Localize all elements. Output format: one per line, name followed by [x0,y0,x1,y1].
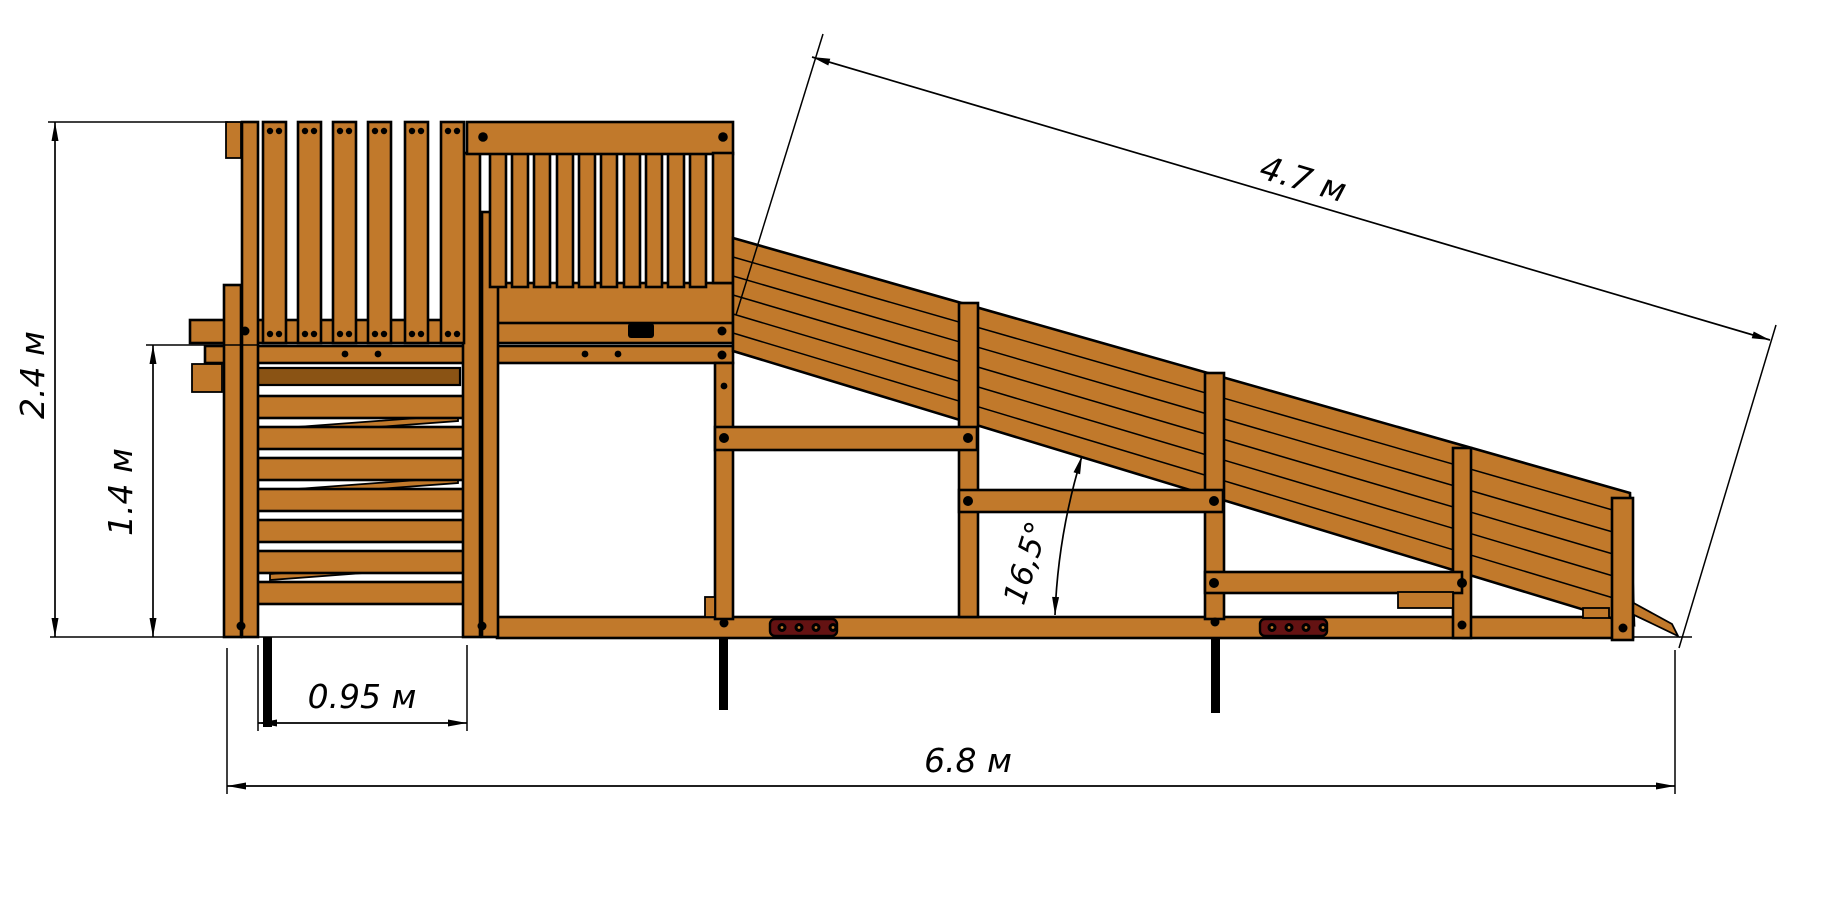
angle-arc [1055,456,1082,615]
stiffener-rail [1205,572,1462,593]
deck-left-bracket [192,364,222,392]
railing-right-section [467,122,733,287]
baluster [690,153,706,287]
arrowhead [448,720,467,727]
railing-slat [263,122,286,343]
tower-post-middle [463,153,480,637]
dim-label-platform-height: 1.4 м [101,448,140,536]
railing-slat [298,122,321,343]
baluster [534,153,550,287]
dim-label-ladder-width: 0.95 м [308,677,417,716]
ladder-rung [256,520,465,542]
ladder-rung [256,489,465,511]
baluster [490,153,506,287]
ladder-rung [256,551,465,573]
deck-rail-band [463,283,733,323]
dimension-line [812,57,1770,340]
railing-slat [333,122,356,343]
railing-slat [368,122,391,343]
dim-label-slide-angle: 16,5° [997,517,1056,608]
arrowhead [150,345,157,364]
ladder-top-step [245,368,460,385]
arrowhead [1656,783,1675,790]
baluster [512,153,528,287]
baluster [601,153,617,287]
extension-line [1679,325,1776,648]
baluster [668,153,684,287]
dim-label-total-length: 6.8 м [924,741,1012,780]
dimension-ladder-width: 0.95 м [258,645,467,731]
stiffener-rail [715,427,977,450]
support-post [1453,448,1471,638]
railing-top-rail [467,122,733,154]
drawing-canvas: 2.4 м 1.4 м 0.95 м 6.8 м 4.7 м [0,0,1846,904]
railing-slat [405,122,428,343]
anchor-plate [1260,619,1328,636]
baluster [579,153,595,287]
technical-drawing: 2.4 м 1.4 м 0.95 м 6.8 м 4.7 м [0,0,1846,904]
ladder-rung [256,582,465,604]
ladder-rung [256,458,465,480]
arrowhead [150,618,157,637]
arrowhead [1052,597,1059,615]
ground-anchor [1211,637,1220,713]
tower-post-front-left [224,285,241,637]
tower-post-cap [226,122,241,158]
dim-label-total-height: 2.4 м [13,331,52,419]
support-post [1612,498,1633,640]
baluster [646,153,662,287]
tower-post-left [242,122,258,637]
railing-slat [441,122,464,343]
ground-anchor [719,637,728,710]
ladder-rung [256,427,465,449]
arrowhead [52,618,59,637]
arrowhead [1752,332,1770,341]
support-post [959,303,978,617]
stiffener-rail-short [1398,592,1453,608]
dim-label-slide-length: 4.7 м [1256,148,1351,210]
dimension-total-length: 6.8 м [227,648,1675,794]
arrowhead [1074,456,1083,474]
arrowhead [227,783,246,790]
baluster [624,153,640,287]
ladder-rung [256,396,465,418]
support-post [715,363,733,619]
post-foot-tab [705,597,715,617]
baluster [557,153,573,287]
stiffener-rail [959,490,1223,512]
slide-exit-board [1630,601,1678,636]
ground-anchor [263,637,272,727]
slide-exit-pad [1583,608,1609,618]
arrowhead [52,122,59,141]
climbing-ladder [245,368,465,604]
railing-left-section [263,122,464,343]
dimension-slide-angle: 16,5° [997,456,1082,615]
brand-plaque [628,323,654,338]
railing-corner-post [713,153,733,283]
anchor-plate [770,619,838,636]
